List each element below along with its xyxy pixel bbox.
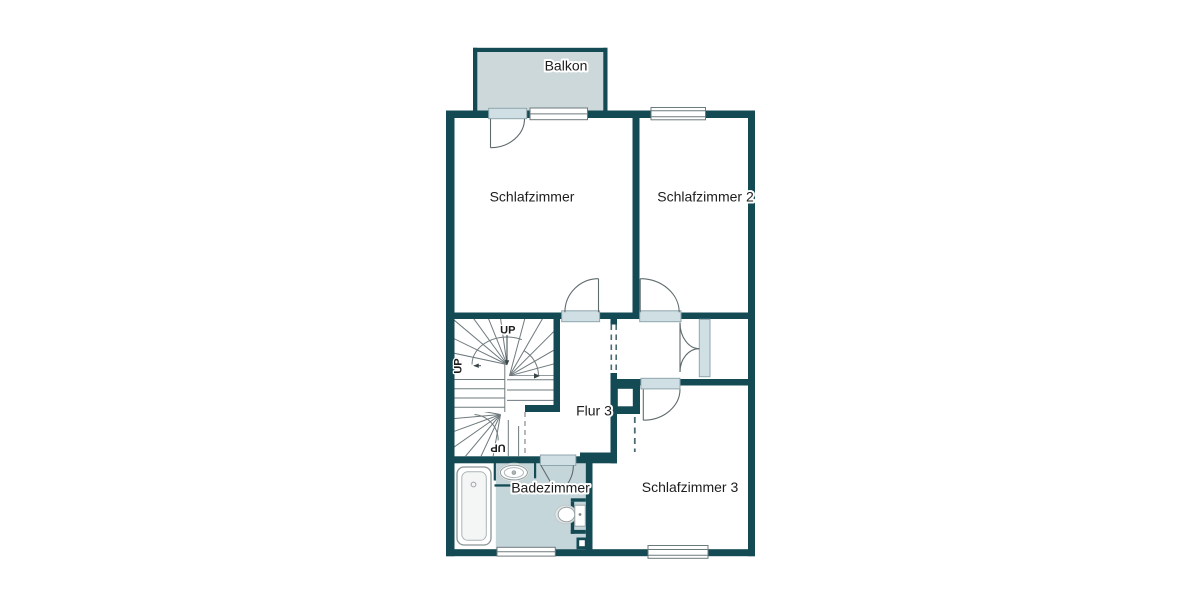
svg-text:Schlafzimmer 2: Schlafzimmer 2	[657, 188, 754, 204]
svg-text:Schlafzimmer: Schlafzimmer	[490, 189, 575, 205]
svg-text:UP: UP	[500, 325, 515, 337]
svg-text:UP: UP	[490, 442, 505, 454]
svg-text:UP: UP	[453, 358, 465, 373]
svg-text:Flur 3: Flur 3	[576, 402, 612, 418]
svg-text:Badezimmer: Badezimmer	[511, 479, 590, 495]
svg-text:Balkon: Balkon	[545, 57, 588, 73]
svg-text:Schlafzimmer 3: Schlafzimmer 3	[642, 479, 739, 495]
